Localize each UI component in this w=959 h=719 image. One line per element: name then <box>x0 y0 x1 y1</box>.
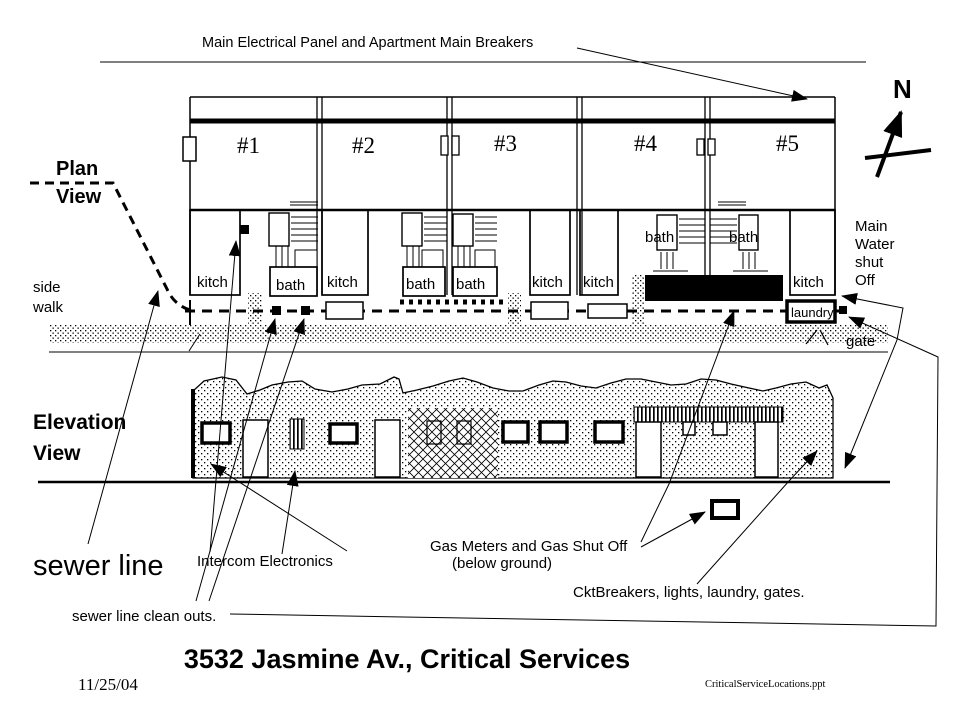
crosshatch-wall <box>408 408 498 478</box>
gas-meter-leader <box>641 512 705 547</box>
sewer-line-annotation: sewer line <box>33 550 164 582</box>
intercom-annotation: Intercom Electronics <box>197 553 333 570</box>
meter-box <box>531 302 568 319</box>
svg-text:Main: Main <box>855 218 888 235</box>
north-label: N <box>893 74 912 104</box>
critical-services-diagram: Main Electrical Panel and Apartment Main… <box>0 0 959 719</box>
room-label-bath-3: bath <box>456 276 485 293</box>
svg-text:Water: Water <box>855 236 894 253</box>
striped-awning <box>634 407 783 422</box>
unit-3-number: #3 <box>494 131 517 156</box>
elevation-view-label-1: Elevation <box>33 411 126 434</box>
main-panel-leader-arrow <box>577 48 807 99</box>
plan-view-label-1: Plan <box>56 158 98 180</box>
water-gate-double-arrow <box>842 296 903 468</box>
cleanouts-annotation: sewer line clean outs. <box>72 608 216 625</box>
gas-annotation-2: (below ground) <box>452 555 552 572</box>
elevation-building <box>193 377 833 478</box>
room-label-kitch-4: kitch <box>583 274 614 291</box>
north-compass: N <box>865 74 931 177</box>
slide-title: 3532 Jasmine Av., Critical Services <box>184 644 630 674</box>
plan-view-label-2: View <box>56 186 102 208</box>
intercom-elevation-leader-2 <box>282 471 295 554</box>
room-label-bath-5: bath <box>729 229 758 246</box>
room-label-bath-2: bath <box>406 276 435 293</box>
intercom-square <box>240 225 249 234</box>
compass-crossbar <box>865 150 931 158</box>
hatched-window <box>457 421 471 444</box>
sidewalk-label-1: side <box>33 279 61 296</box>
svg-text:shut: shut <box>855 254 884 271</box>
meter-box <box>588 304 627 318</box>
plan-view-building: #1 #2 #3 #4 #5 <box>183 97 835 332</box>
ckt-breakers-annotation: CktBreakers, lights, laundry, gates. <box>573 584 805 601</box>
slide-date: 11/25/04 <box>78 675 138 694</box>
north-arrow-icon <box>877 112 901 177</box>
cleanout-square-2 <box>301 306 310 315</box>
unit-divider-walls <box>317 97 710 295</box>
sidewalk-band <box>49 325 888 343</box>
intercom-panel <box>290 419 304 449</box>
room-label-bath-4: bath <box>645 229 674 246</box>
sidewalk-label-2: walk <box>32 299 64 316</box>
slide-canvas: Main Electrical Panel and Apartment Main… <box>0 0 959 719</box>
utility-block <box>645 275 783 301</box>
water-shutoff-square <box>839 306 847 314</box>
room-label-kitch-3: kitch <box>532 274 563 291</box>
gas-meter-symbol <box>712 501 738 518</box>
unit-4-number: #4 <box>634 131 658 156</box>
main-panel-annotation: Main Electrical Panel and Apartment Main… <box>202 35 533 51</box>
room-label-kitch-1: kitch <box>197 274 228 291</box>
cleanout-square-1 <box>272 306 281 315</box>
room-label-kitch-5: kitch <box>793 274 824 291</box>
elevation-view-label-2: View <box>33 442 81 465</box>
gate-label: gate <box>846 333 875 350</box>
unit-1-number: #1 <box>237 133 260 158</box>
slide-filename: CriticalServiceLocations.ppt <box>705 679 826 690</box>
laundry-label: laundry <box>791 305 834 320</box>
meter-box <box>326 302 363 319</box>
closet-lines <box>290 202 746 205</box>
room-label-kitch-2: kitch <box>327 274 358 291</box>
gas-annotation-1: Gas Meters and Gas Shut Off <box>430 538 628 555</box>
hatched-window <box>427 421 441 444</box>
svg-text:Off: Off <box>855 272 876 289</box>
unit-5-number: #5 <box>776 131 799 156</box>
unit-2-number: #2 <box>352 133 375 158</box>
room-label-bath-1: bath <box>276 277 305 294</box>
main-water-label: Main Water shut Off <box>855 218 894 289</box>
